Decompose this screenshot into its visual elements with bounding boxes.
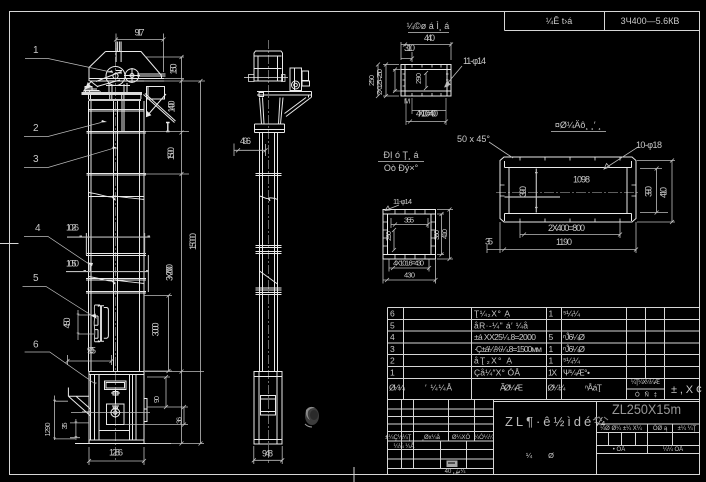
svg-text:3: 3 bbox=[390, 344, 395, 354]
svg-text:4: 4 bbox=[35, 223, 41, 234]
svg-text:¼Ţ: ¼Ţ bbox=[403, 435, 412, 441]
svg-text:5: 5 bbox=[549, 332, 554, 342]
svg-text:1098: 1098 bbox=[573, 175, 590, 185]
svg-text:¸Øх¼å: ¸Øх¼å bbox=[422, 434, 441, 441]
svg-text:290: 290 bbox=[414, 73, 423, 84]
svg-text:ÓØ ą: ÓØ ą bbox=[653, 425, 668, 432]
svg-text:′ ¼¼Å: ′ ¼¼Å bbox=[425, 383, 452, 393]
svg-text:±¼ ¼Ţ: ±¼ ¼Ţ bbox=[678, 426, 697, 432]
svg-text:ZL¶·ê½ìdé¼: ZL¶·ê½ìdé¼ bbox=[505, 414, 605, 429]
svg-text:ĐỊ ó Ţ¸ á: ĐỊ ó Ţ¸ á bbox=[383, 150, 418, 160]
svg-text:1: 1 bbox=[390, 368, 395, 378]
svg-text:35: 35 bbox=[60, 423, 69, 430]
svg-text:290: 290 bbox=[384, 231, 393, 241]
svg-text:¼©ø á Ì¸ á: ¼©ø á Ì¸ á bbox=[407, 21, 450, 31]
svg-text:⁵¼¼: ⁵¼¼ bbox=[563, 309, 581, 319]
svg-text:90: 90 bbox=[152, 396, 161, 403]
svg-text:·Ç±á¼%¼.8=1500мм: ·Ç±á¼%¼.8=1500мм bbox=[474, 344, 542, 354]
svg-text:Ţ¼₂X° Ạ: Ţ¼₂X° Ạ bbox=[474, 309, 510, 319]
svg-text:36: 36 bbox=[175, 417, 184, 424]
svg-text:¼Ø Ø¼ ±¼ X¼: ¼Ø Ø¼ ±¼ X¼ bbox=[600, 426, 643, 432]
svg-text:430: 430 bbox=[404, 271, 415, 280]
svg-text:948: 948 bbox=[262, 449, 273, 459]
svg-text:Ø¼¼: Ø¼¼ bbox=[389, 383, 406, 393]
svg-text:ÃØ¼Æ: ÃØ¼Æ bbox=[500, 383, 524, 393]
svg-text:5: 5 bbox=[390, 321, 395, 331]
svg-text:3Х2000: 3Х2000 bbox=[165, 264, 175, 281]
svg-text:Ø¼¼: Ø¼¼ bbox=[548, 383, 567, 393]
svg-text:⁵¼¼: ⁵¼¼ bbox=[563, 356, 581, 366]
svg-text:1290: 1290 bbox=[43, 423, 52, 437]
svg-text:1500: 1500 bbox=[166, 147, 176, 160]
svg-text:2Х400=800: 2Х400=800 bbox=[548, 223, 585, 233]
svg-text:ⁿĴ6¼Ø: ⁿĴ6¼Ø bbox=[563, 332, 585, 342]
svg-text:¼Ó¼¼: ¼Ó¼¼ bbox=[474, 434, 495, 441]
svg-text:11-φ14: 11-φ14 bbox=[393, 197, 412, 206]
svg-text:15000: 15000 bbox=[188, 233, 198, 250]
svg-text:¼¼ ÓÅ: ¼¼ ÓÅ bbox=[663, 446, 683, 453]
svg-text:• ÓÅ: • ÓÅ bbox=[613, 446, 625, 453]
svg-text:¼: ¼ bbox=[526, 451, 533, 460]
svg-text:1286: 1286 bbox=[109, 448, 123, 458]
svg-text:917: 917 bbox=[135, 28, 145, 38]
svg-text:10-φ18: 10-φ18 bbox=[636, 140, 662, 150]
svg-text:2: 2 bbox=[390, 356, 395, 366]
svg-text:1400: 1400 bbox=[167, 101, 177, 113]
svg-text:1: 1 bbox=[549, 309, 554, 319]
svg-text:5: 5 bbox=[33, 273, 39, 284]
svg-text:¼Ţ¼X¼¼Æ: ¼Ţ¼X¼¼Æ bbox=[631, 380, 660, 386]
svg-text:1: 1 bbox=[549, 344, 554, 354]
svg-text:35: 35 bbox=[485, 237, 493, 247]
svg-text:1: 1 bbox=[549, 356, 554, 366]
svg-text:ⁿĴ6¼Ø: ⁿĴ6¼Ø bbox=[563, 344, 585, 354]
svg-text:3000: 3000 bbox=[151, 323, 161, 337]
svg-text:390: 390 bbox=[518, 186, 528, 197]
svg-text:150: 150 bbox=[169, 64, 179, 75]
svg-text:2: 2 bbox=[33, 123, 39, 134]
svg-text:ZL250X15m: ZL250X15m bbox=[612, 401, 681, 417]
svg-text:Οò Đý×°: Οò Đý×° bbox=[384, 163, 419, 173]
svg-text:390: 390 bbox=[644, 186, 654, 197]
svg-text:åṚ·-¼" á′ ¼å: åṚ·-¼" á′ ¼å bbox=[474, 321, 528, 331]
svg-text:¤Ø¼Äô¸ ¸′ ¸: ¤Ø¼Äô¸ ¸′ ¸ bbox=[555, 120, 601, 130]
svg-text:4Х100=400: 4Х100=400 bbox=[416, 109, 438, 119]
svg-text:3: 3 bbox=[33, 154, 39, 165]
svg-text:4: 4 bbox=[390, 332, 395, 342]
svg-text:±á XX25¼.8=2000: ±á XX25¼.8=2000 bbox=[474, 332, 536, 342]
svg-text:±,X¢: ±,X¢ bbox=[671, 384, 702, 396]
svg-text:355: 355 bbox=[404, 216, 414, 225]
svg-text:1X: 1X bbox=[548, 368, 557, 378]
svg-text:ⁿÅáŢ: ⁿÅáŢ bbox=[585, 383, 602, 393]
svg-text:11-φ14: 11-φ14 bbox=[463, 56, 486, 66]
svg-text:905: 905 bbox=[87, 346, 96, 356]
svg-text:310: 310 bbox=[404, 43, 415, 53]
svg-text:¼¼ ¼Å: ¼¼ ¼Å bbox=[394, 443, 415, 450]
svg-text:4Х101.6=430: 4Х101.6=430 bbox=[393, 259, 424, 268]
svg-text:Ø: Ø bbox=[548, 451, 554, 460]
svg-text:ÓÑ‡: ÓÑ‡ bbox=[635, 392, 657, 399]
svg-text:440: 440 bbox=[424, 33, 435, 43]
svg-text:±¼Ç¼: ±¼Ç¼ bbox=[385, 435, 404, 441]
svg-text:410: 410 bbox=[659, 187, 669, 198]
svg-text:450: 450 bbox=[62, 318, 72, 329]
svg-text:1050: 1050 bbox=[66, 259, 79, 269]
svg-text:¼Ê t›á: ¼Ê t›á bbox=[546, 16, 573, 26]
svg-text:М: М bbox=[404, 97, 410, 106]
svg-text:496: 496 bbox=[240, 136, 251, 146]
svg-text:410: 410 bbox=[440, 229, 449, 239]
svg-text:Ψ¼Æ°•: Ψ¼Æ°• bbox=[563, 368, 590, 378]
svg-text:1190: 1190 bbox=[556, 237, 572, 247]
svg-text:1: 1 bbox=[33, 45, 39, 56]
svg-text:åŢ₂X° Ạ: åŢ₂X° Ạ bbox=[474, 356, 512, 366]
svg-text:6: 6 bbox=[390, 309, 395, 319]
svg-text:3Ч400—5.6КВ: 3Ч400—5.6КВ bbox=[621, 16, 680, 26]
svg-text:1026: 1026 bbox=[66, 223, 79, 233]
svg-text:2Х125=250: 2Х125=250 bbox=[375, 69, 384, 95]
svg-text:40 ڜ¼: 40 ڜ¼ bbox=[445, 469, 467, 475]
svg-text:Ø¼XÓ: Ø¼XÓ bbox=[452, 434, 471, 441]
svg-text:6: 6 bbox=[33, 340, 39, 351]
svg-text:50 x 45°: 50 x 45° bbox=[457, 134, 490, 144]
svg-text:Çå¼″X° ÓÅ: Çå¼″X° ÓÅ bbox=[474, 368, 520, 378]
